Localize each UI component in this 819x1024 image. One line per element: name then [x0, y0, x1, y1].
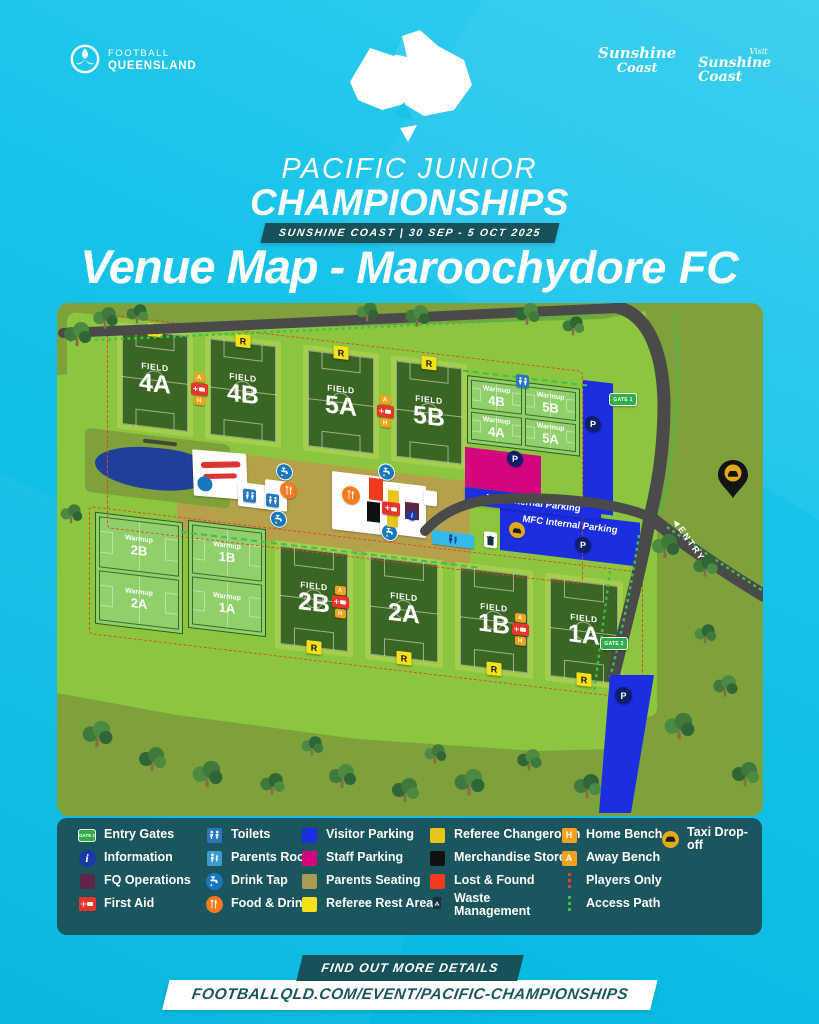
- legend-staff-parking: Staff Parking: [300, 849, 403, 867]
- legend-first-aid: + First Aid: [78, 895, 154, 913]
- fq-ball-icon: [70, 44, 100, 79]
- legend-drink-tap: Drink Tap: [205, 872, 288, 890]
- legend-players-only: Players Only: [560, 872, 662, 890]
- legend-referee-rest-area: Referee Rest Area: [300, 895, 433, 913]
- entry-gate-2: GATE 2: [600, 637, 628, 650]
- referee-rest-badge: R: [397, 651, 412, 666]
- legend-visitor-parking: Visitor Parking: [300, 826, 414, 844]
- football-queensland-logo: FOOTBALL QUEENSLAND: [70, 44, 197, 79]
- home-bench-icon: H: [515, 636, 526, 646]
- away-bench-icon: A: [194, 373, 205, 383]
- parking-p-badge: P: [615, 687, 632, 704]
- waste-management-icon: [484, 531, 497, 549]
- legend-parents-seating: Parents Seating: [300, 872, 420, 890]
- warmup-block-west: Warmup2B Warmup2A: [95, 512, 183, 634]
- home-bench-icon: H: [562, 828, 577, 843]
- field-2A: R FIELD2A: [365, 551, 443, 668]
- warmup-1A: Warmup1A: [192, 576, 262, 633]
- referee-rest-badge: R: [334, 345, 349, 360]
- warmup-4A: Warmup4A: [471, 411, 522, 446]
- drink-tap-icon: [206, 873, 223, 890]
- legend-home-bench: H Home Bench: [560, 826, 662, 844]
- taxi-dropoff-icon: [662, 831, 679, 848]
- parents-room-icon: [207, 851, 222, 866]
- bench-cluster: A + H: [331, 585, 349, 619]
- event-title-line2: CHAMPIONSHIPS: [0, 182, 819, 224]
- referee-rest-badge: R: [487, 661, 502, 676]
- entry-gate-1: GATE 1: [609, 393, 637, 406]
- toilets-icon: [207, 828, 222, 843]
- fq-logo-line1: FOOTBALL: [108, 49, 197, 60]
- players-only-icon: [568, 873, 571, 890]
- home-bench-icon: H: [194, 396, 205, 406]
- page-title-italic: Maroochydore FC: [356, 242, 739, 293]
- field-5A: R FIELD5A: [303, 345, 379, 460]
- away-bench-icon: A: [562, 851, 577, 866]
- legend-referee-changeroom: Referee Changeroom: [428, 826, 580, 844]
- legend-fq-operations: FQ Operations: [78, 872, 191, 890]
- legend-access-path: Access Path: [560, 895, 660, 913]
- lost-found-swatch: [430, 874, 445, 889]
- merchandise-store-swatch: [430, 851, 445, 866]
- information-icon: i: [407, 510, 417, 521]
- legend-away-bench: A Away Bench: [560, 849, 660, 867]
- lost-and-found: [369, 477, 383, 501]
- page-title-bold: Venue Map -: [80, 240, 344, 293]
- legend-waste-management: Waste Management: [428, 892, 540, 918]
- field-4A: R FIELD4A: [117, 322, 193, 437]
- event-url-banner: FOOTBALLQLD.COM/EVENT/PACIFIC-CHAMPIONSH…: [162, 980, 658, 1010]
- legend-taxi-dropoff: Taxi Drop-off: [661, 826, 762, 852]
- field-4B: R FIELD4B: [205, 333, 281, 448]
- field-5B: R FIELD5B: [391, 355, 467, 470]
- parents-seating-swatch: [302, 874, 317, 889]
- first-aid-icon: +: [377, 404, 394, 418]
- toilets-icon: [266, 493, 279, 508]
- event-logo-australia-icon: [342, 30, 474, 148]
- legend-panel: GATE 1 Entry Gates i Information FQ Oper…: [57, 818, 762, 935]
- home-bench-icon: H: [335, 608, 346, 618]
- page-title: Venue Map -Maroochydore FC: [0, 243, 819, 290]
- taxi-drop-off-pin: [718, 460, 748, 498]
- venue-map: R FIELD4A R FIELD4B R FIELD5A R: [57, 303, 763, 816]
- legend-entry-gates: GATE 1 Entry Gates: [78, 826, 174, 844]
- toilets-icon: [516, 374, 529, 389]
- entry-road-label: ◀ENTRY: [671, 517, 707, 563]
- information-icon: i: [79, 850, 96, 867]
- fq-operations-swatch: [80, 874, 95, 889]
- bench-cluster: A + H: [376, 394, 394, 428]
- waste-management-icon: [431, 895, 443, 915]
- warmup-5B: Warmup5B: [525, 386, 576, 421]
- referee-changeroom-swatch: [430, 828, 445, 843]
- visit-sunshine-coast-logo: Visit Sunshine Coast: [698, 48, 819, 84]
- legend-food-drink: Food & Drink: [205, 895, 309, 913]
- referee-rest-badge: R: [307, 640, 322, 655]
- warmup-4B: Warmup4B: [471, 380, 522, 415]
- first-aid-station: +: [382, 501, 400, 516]
- food-drink-icon: [206, 896, 223, 913]
- warmup-5A: Warmup5A: [525, 418, 576, 453]
- first-aid-icon: +: [79, 897, 96, 911]
- pond-area-label: [143, 438, 177, 446]
- pitch: FIELD4B: [210, 338, 276, 442]
- referee-rest-badge: R: [148, 323, 163, 338]
- referee-rest-badge: R: [236, 334, 251, 349]
- referee-changeroom: [387, 515, 398, 528]
- merchandise-store: [367, 501, 380, 523]
- legend-merchandise-store: Merchandise Store: [428, 849, 566, 867]
- warmup-2A: Warmup2A: [99, 570, 179, 630]
- pitch: FIELD2A: [370, 557, 438, 663]
- referee-rest-badge: R: [422, 356, 437, 371]
- warmup-2B: Warmup2B: [99, 516, 179, 576]
- fq-logo-line2: QUEENSLAND: [108, 60, 197, 73]
- pitch: FIELD5B: [396, 361, 462, 465]
- field-1A: R FIELD1A: [545, 572, 623, 689]
- pitch: FIELD4A: [122, 328, 188, 432]
- entry-gate-icon: GATE 1: [78, 829, 96, 842]
- referee-rest-area-swatch: [302, 897, 317, 912]
- staff-parking-swatch: [302, 851, 317, 866]
- clubhouse-building: [424, 490, 437, 507]
- bench-cluster: A + H: [511, 612, 529, 646]
- legend-lost-found: Lost & Found: [428, 872, 535, 890]
- legend-information: i Information: [78, 849, 173, 867]
- find-out-more-banner: FIND OUT MORE DETAILS: [296, 955, 523, 981]
- first-aid-icon: +: [512, 622, 529, 636]
- legend-toilets: Toilets: [205, 826, 270, 844]
- first-aid-icon: +: [191, 382, 208, 396]
- pitch: FIELD1A: [550, 578, 618, 684]
- away-bench-icon: A: [380, 395, 391, 405]
- home-bench-icon: H: [380, 418, 391, 428]
- first-aid-icon: +: [332, 595, 349, 609]
- partner-logos: Sunshine Coast Visit Sunshine Coast: [598, 46, 819, 84]
- bench-cluster: A + H: [190, 372, 208, 406]
- poster: FOOTBALL QUEENSLAND Sunshine Coast Visit…: [0, 0, 819, 1024]
- toilets-icon: [243, 488, 256, 503]
- away-bench-icon: A: [335, 585, 346, 595]
- campus: R FIELD4A R FIELD4B R FIELD5A R: [97, 313, 657, 710]
- access-path-icon: [568, 896, 571, 913]
- referee-rest-badge: R: [577, 672, 592, 687]
- pitch: FIELD5A: [308, 350, 374, 454]
- visitor-parking-swatch: [302, 828, 317, 843]
- away-bench-icon: A: [515, 613, 526, 623]
- sunshine-coast-logo: Sunshine Coast: [598, 46, 676, 75]
